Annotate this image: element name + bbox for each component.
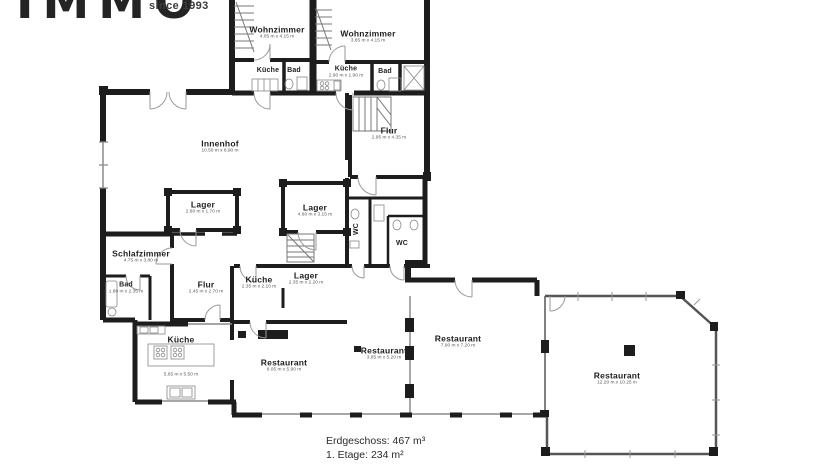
room-dims: 1.80 m x 2.35 m	[109, 289, 143, 294]
room-dims: 2.80 m x 1.70 m	[186, 210, 220, 215]
room-label-wohnzimmer-1: Wohnzimmer4.05 m x 4.15 m	[249, 26, 304, 41]
toilet-icon-unit2	[377, 78, 401, 91]
staircase-middle	[287, 234, 314, 262]
room-label-lager-1: Lager2.80 m x 1.70 m	[186, 201, 220, 216]
room-dims: 2.95 m x 4.35 m	[372, 136, 406, 141]
room-label-bad-2: Bad1.80 m x 2.35 m	[109, 282, 143, 295]
room-label-kueche-unit2: Küche2.90 m x 1.90 m	[329, 66, 363, 79]
kitchen-sink	[167, 386, 195, 399]
floor-area-summary: Erdgeschoss: 467 m³ 1. Etage: 234 m²	[326, 434, 425, 462]
room-dims: 3.85 m x 5.20 m	[361, 356, 407, 361]
room-label-restaurant-3: Restaurant7.90 m x 7.20 m	[435, 335, 481, 350]
toilet-icon-wc2	[374, 205, 418, 230]
kitchen-island	[148, 344, 214, 366]
structural-column	[624, 345, 635, 356]
room-label-wohnzimmer-2: Wohnzimmer3.85 m x 4.15 m	[340, 30, 395, 45]
room-dims-kueche-3: 5.65 m x 5.50 m	[164, 373, 198, 378]
room-label-kueche-2: Küche2.35 m x 2.10 m	[242, 276, 276, 291]
room-label-flur-2: Flur2.45 m x 2.70 m	[189, 281, 223, 296]
toilet-icon-unit1	[285, 77, 307, 90]
area-erdgeschoss: Erdgeschoss: 467 m³	[326, 434, 425, 448]
room-dims: 2.35 m x 2.10 m	[242, 285, 276, 290]
room-label-flur-top: Flur2.95 m x 4.35 m	[372, 127, 406, 142]
room-dims: 2.45 m x 2.70 m	[189, 290, 223, 295]
stove-icon-unit2	[317, 80, 341, 91]
room-dims: 4.75 m x 3.80 m	[112, 259, 170, 264]
room-label-restaurant-1: Restaurant8.05 m x 5.90 m	[261, 359, 307, 374]
room-label-lager-2: Lager4.60 m x 3.15 m	[298, 204, 332, 219]
window-marks	[99, 142, 108, 188]
room-label-bad-unit1: Bad	[287, 67, 301, 75]
room-dims: 2.90 m x 1.90 m	[329, 73, 363, 78]
room-label-bad-unit2: Bad	[378, 68, 392, 76]
room-label-schlafzimmer: Schlafzimmer4.75 m x 3.80 m	[112, 250, 170, 265]
area-etage: 1. Etage: 234 m²	[326, 448, 425, 462]
room-label-lager-3: Lager2.35 m x 2.20 m	[289, 272, 323, 287]
shower-icon-top-right	[404, 66, 424, 90]
room-label-kueche-3: Küche	[168, 335, 195, 344]
room-dims: 3.85 m x 4.15 m	[340, 39, 395, 44]
kitchen-counter-unit1	[252, 79, 278, 91]
room-dims: 4.05 m x 4.15 m	[249, 35, 304, 40]
room-dims: 10.50 m x 8.90 m	[201, 149, 238, 154]
room-dims: 8.05 m x 5.90 m	[261, 368, 307, 373]
staircase-unit2	[315, 8, 332, 50]
room-dims: 12.20 m x 10.25 m	[594, 381, 640, 386]
room-label-wc-2: WC	[396, 240, 408, 248]
room-label-restaurant-4: Restaurant12.20 m x 10.25 m	[594, 372, 640, 387]
room-dims: 4.60 m x 3.15 m	[298, 213, 332, 218]
floorplan-drawing	[0, 0, 820, 465]
room-label-wc-1: WC	[353, 223, 361, 235]
room-dims: 7.90 m x 7.20 m	[435, 344, 481, 349]
room-label-innenhof: Innenhof10.50 m x 8.90 m	[201, 140, 238, 155]
room-label-restaurant-2: Restaurant3.85 m x 5.20 m	[361, 347, 407, 362]
kitchen-counter-top	[137, 326, 165, 334]
floorplan-page: IMMO since 1993	[0, 0, 820, 465]
room-dims: 2.35 m x 2.20 m	[289, 281, 323, 286]
room-label-kueche-unit1: Küche	[257, 67, 279, 75]
